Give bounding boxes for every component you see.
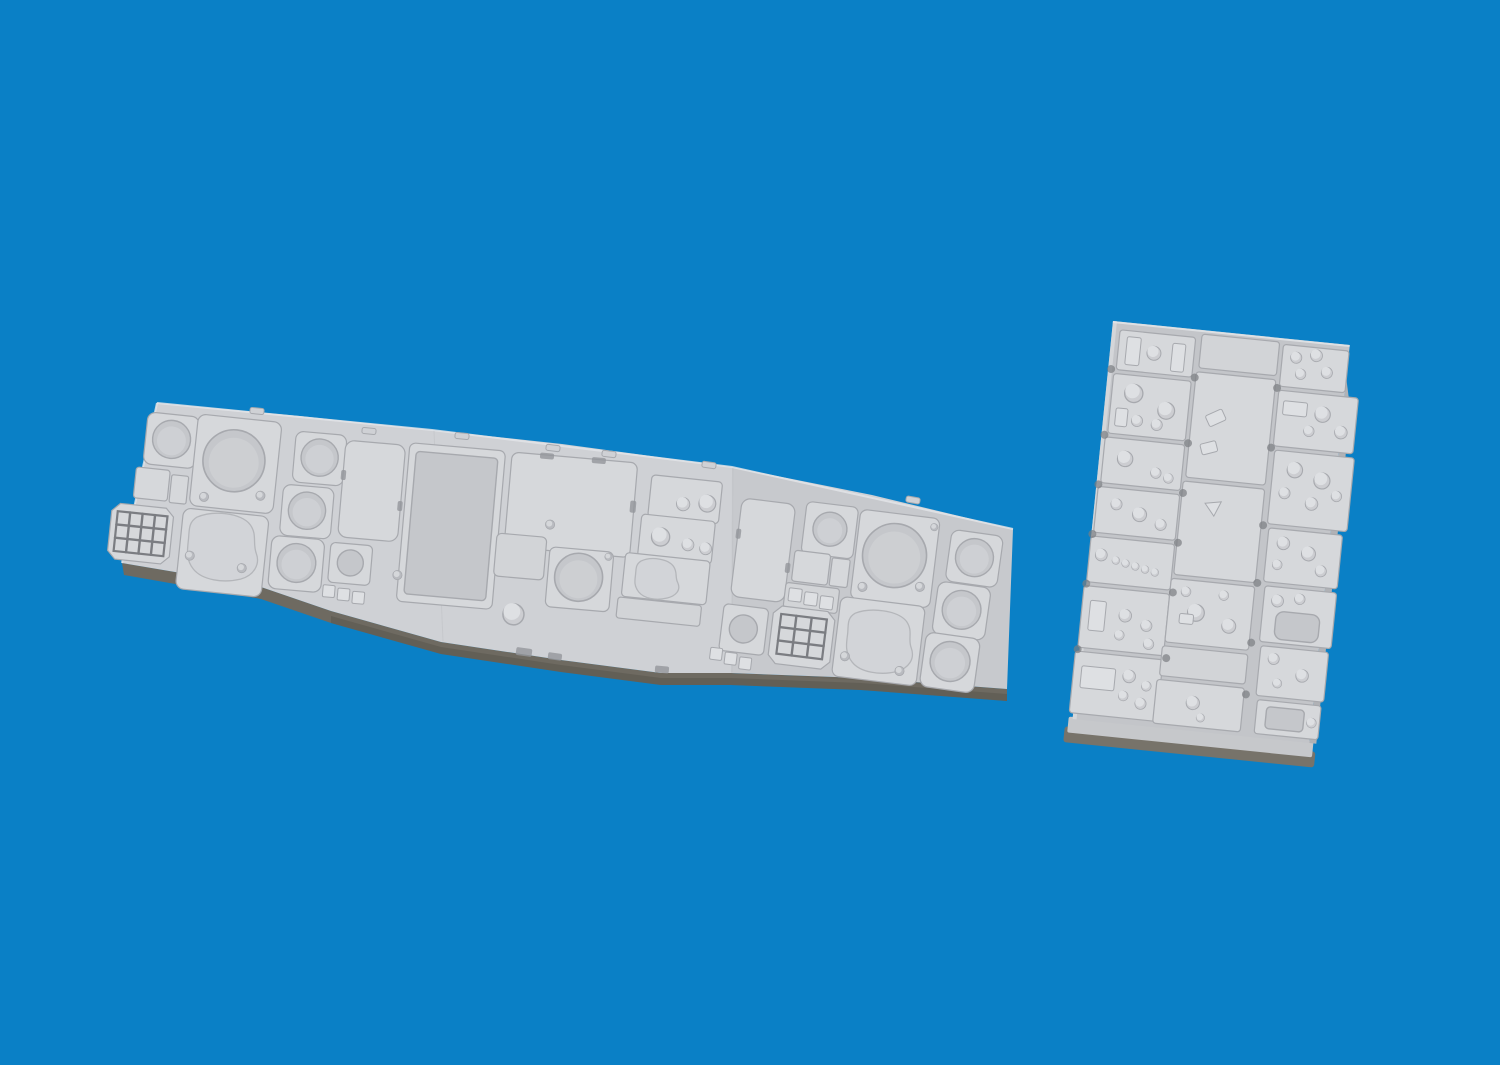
product-photo-stage (0, 0, 1500, 1065)
button (352, 591, 365, 604)
gauge-bezel (143, 412, 200, 469)
tab (362, 427, 377, 434)
switch-stub (1114, 408, 1128, 427)
button (724, 652, 737, 665)
bottom-tab (655, 665, 670, 673)
screw (545, 520, 555, 530)
gauge-bezel (279, 484, 334, 539)
button (337, 588, 350, 601)
switch-stub (1080, 666, 1116, 691)
sub-panel (1186, 372, 1276, 486)
sub-panel (1101, 437, 1185, 491)
gauge-bezel (919, 632, 981, 694)
button (322, 585, 335, 598)
screw (605, 553, 613, 561)
edge-notch (592, 457, 606, 464)
side-notch (341, 470, 347, 480)
switch-plate (829, 558, 850, 588)
button (738, 657, 751, 670)
tab (702, 461, 717, 469)
sub-panel (1087, 536, 1175, 590)
switch-plate (133, 467, 170, 501)
switch-stub (1088, 600, 1107, 631)
sub-panel (1165, 578, 1255, 650)
sub-panel (1174, 481, 1265, 583)
tab (250, 407, 265, 414)
sub-panel (1273, 390, 1358, 454)
button (804, 592, 818, 606)
tab (602, 450, 617, 458)
button (788, 588, 802, 602)
recessed-window (1274, 611, 1321, 643)
switch-stub (1282, 401, 1307, 417)
avionics-box (338, 440, 406, 542)
switch-plate (791, 550, 831, 585)
switch-stub (1170, 343, 1186, 372)
tab (455, 432, 470, 439)
gauge-bezel (945, 529, 1004, 588)
sub-panel (1199, 334, 1280, 376)
recessed-window (1265, 707, 1305, 733)
screw (392, 570, 402, 580)
gauge-bezel (268, 535, 325, 592)
sub-panel (1256, 646, 1329, 703)
side-console-panel-part (1063, 320, 1366, 768)
gauge-bezel (931, 581, 991, 641)
small-display (493, 533, 547, 580)
render-canvas (0, 0, 1500, 1065)
sub-panel (1108, 373, 1192, 441)
gauge-bezel (292, 431, 347, 486)
edge-notch (540, 452, 554, 459)
button (819, 596, 833, 610)
mfd-screen (404, 451, 498, 601)
button (709, 647, 722, 660)
switch-stub (1125, 337, 1142, 366)
switch-plate (169, 475, 189, 505)
edge-notch (629, 500, 636, 512)
tab (546, 444, 561, 452)
side-notch (397, 501, 403, 511)
keypad-grid (776, 614, 827, 659)
switch-stub (1179, 613, 1194, 624)
